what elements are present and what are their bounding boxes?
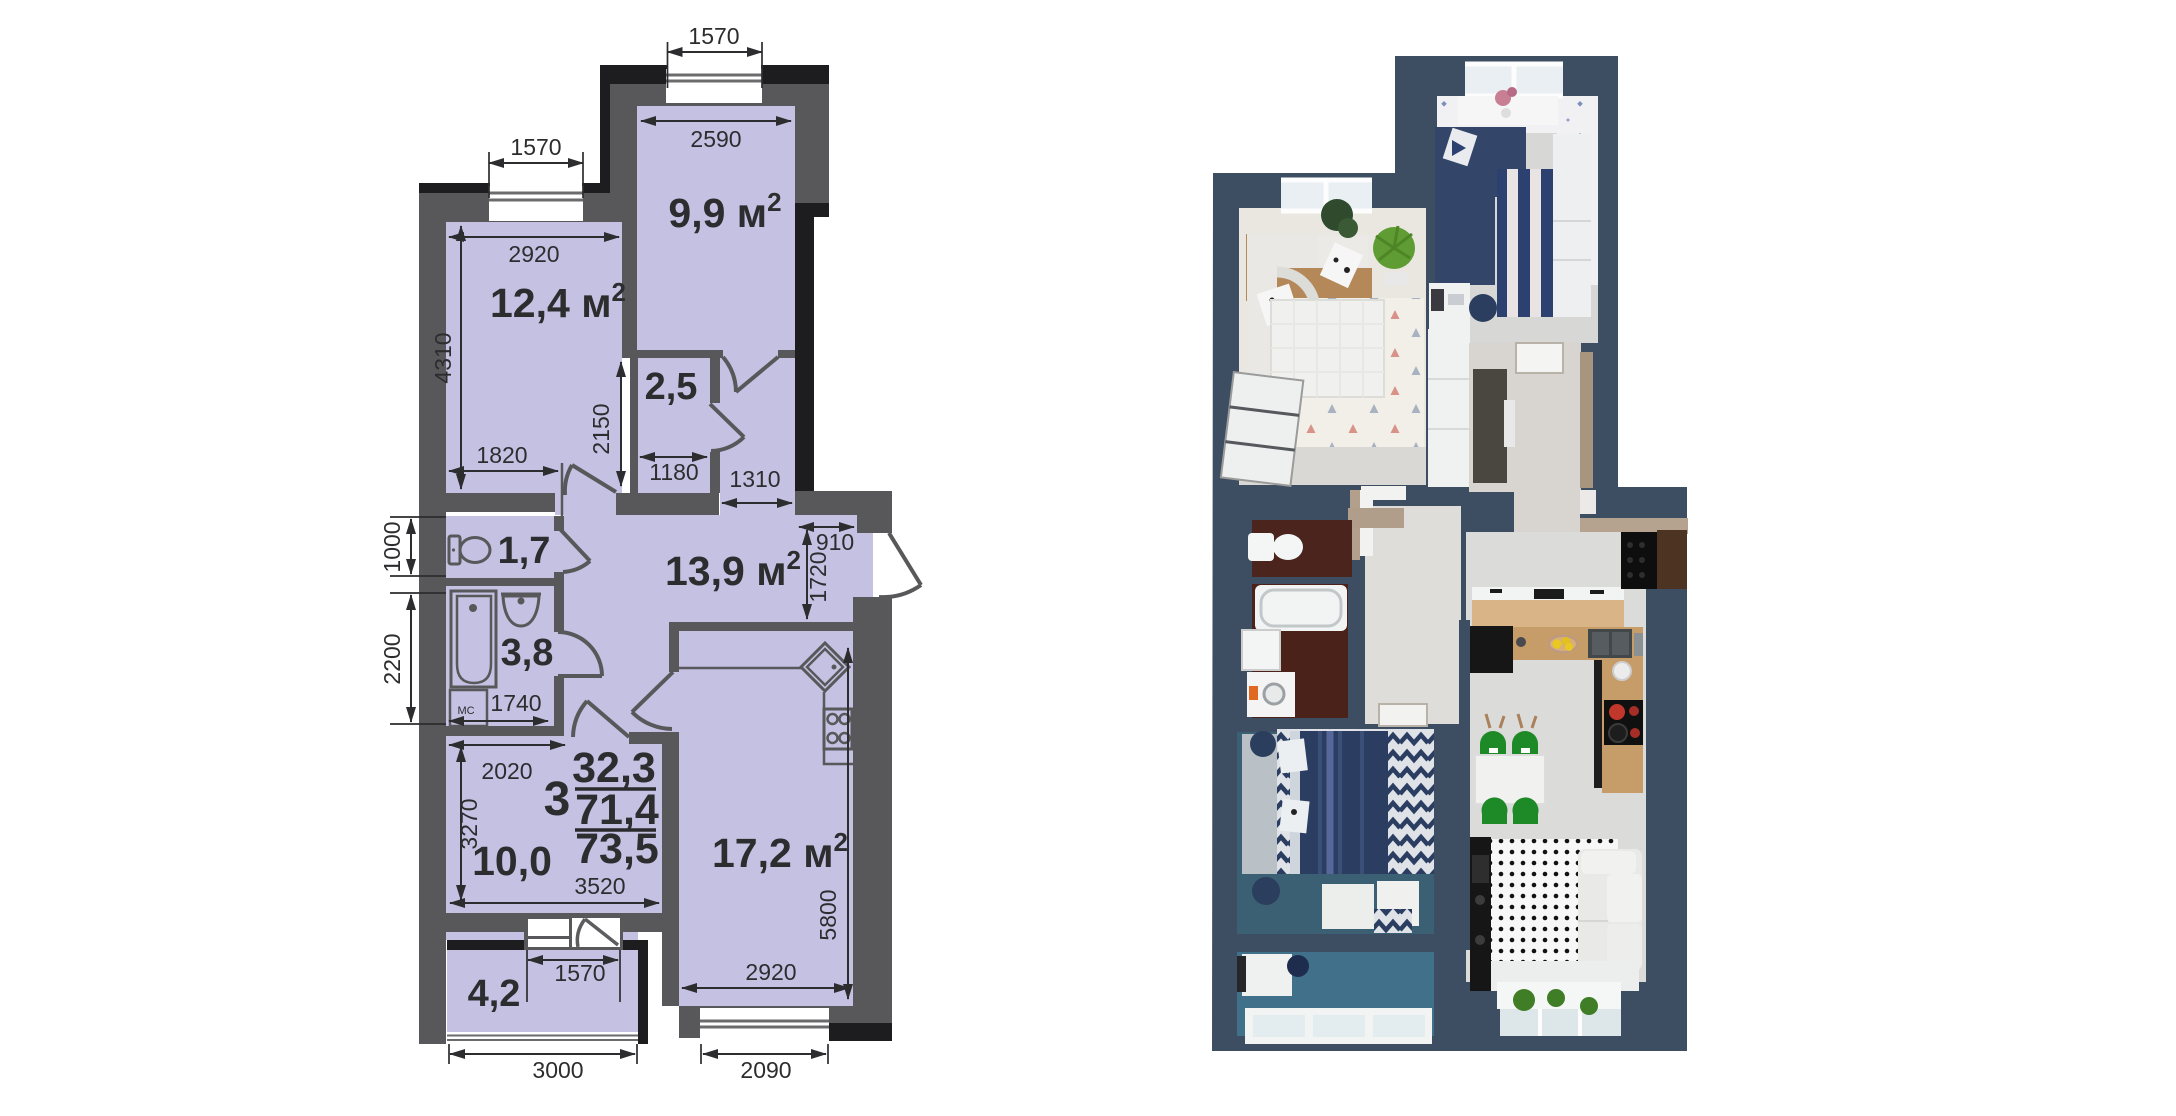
- svg-text:5800: 5800: [815, 889, 841, 940]
- svg-text:9,9 м2: 9,9 м2: [668, 187, 781, 236]
- svg-text:12,4 м2: 12,4 м2: [490, 277, 626, 326]
- svg-text:10,0: 10,0: [472, 838, 552, 884]
- svg-text:1,7: 1,7: [498, 530, 551, 572]
- svg-text:73,5: 73,5: [575, 825, 659, 873]
- svg-text:13,9 м2: 13,9 м2: [665, 545, 801, 594]
- svg-text:1720: 1720: [805, 551, 831, 602]
- svg-text:4,2: 4,2: [468, 973, 521, 1015]
- svg-text:2,5: 2,5: [645, 366, 698, 408]
- svg-text:1570: 1570: [510, 134, 561, 160]
- svg-text:2920: 2920: [745, 959, 796, 985]
- svg-text:3,8: 3,8: [501, 632, 554, 674]
- svg-text:4310: 4310: [430, 332, 456, 383]
- svg-text:2200: 2200: [379, 633, 405, 684]
- svg-text:2150: 2150: [588, 403, 614, 454]
- svg-text:1740: 1740: [490, 690, 541, 716]
- svg-text:2090: 2090: [740, 1057, 791, 1083]
- svg-text:2920: 2920: [508, 241, 559, 267]
- svg-text:3000: 3000: [532, 1057, 583, 1083]
- svg-text:17,2 м2: 17,2 м2: [712, 827, 848, 876]
- svg-text:1570: 1570: [554, 960, 605, 986]
- svg-text:3520: 3520: [574, 873, 625, 899]
- svg-text:1570: 1570: [688, 23, 739, 49]
- svg-text:1820: 1820: [476, 442, 527, 468]
- svg-text:3: 3: [544, 773, 571, 826]
- svg-text:910: 910: [816, 529, 854, 555]
- svg-text:2020: 2020: [481, 758, 532, 784]
- svg-text:2590: 2590: [690, 126, 741, 152]
- svg-text:1000: 1000: [379, 521, 405, 572]
- svg-text:МС: МС: [457, 705, 474, 717]
- svg-text:1180: 1180: [649, 459, 698, 485]
- svg-text:32,3: 32,3: [572, 744, 656, 792]
- svg-text:1310: 1310: [729, 466, 780, 492]
